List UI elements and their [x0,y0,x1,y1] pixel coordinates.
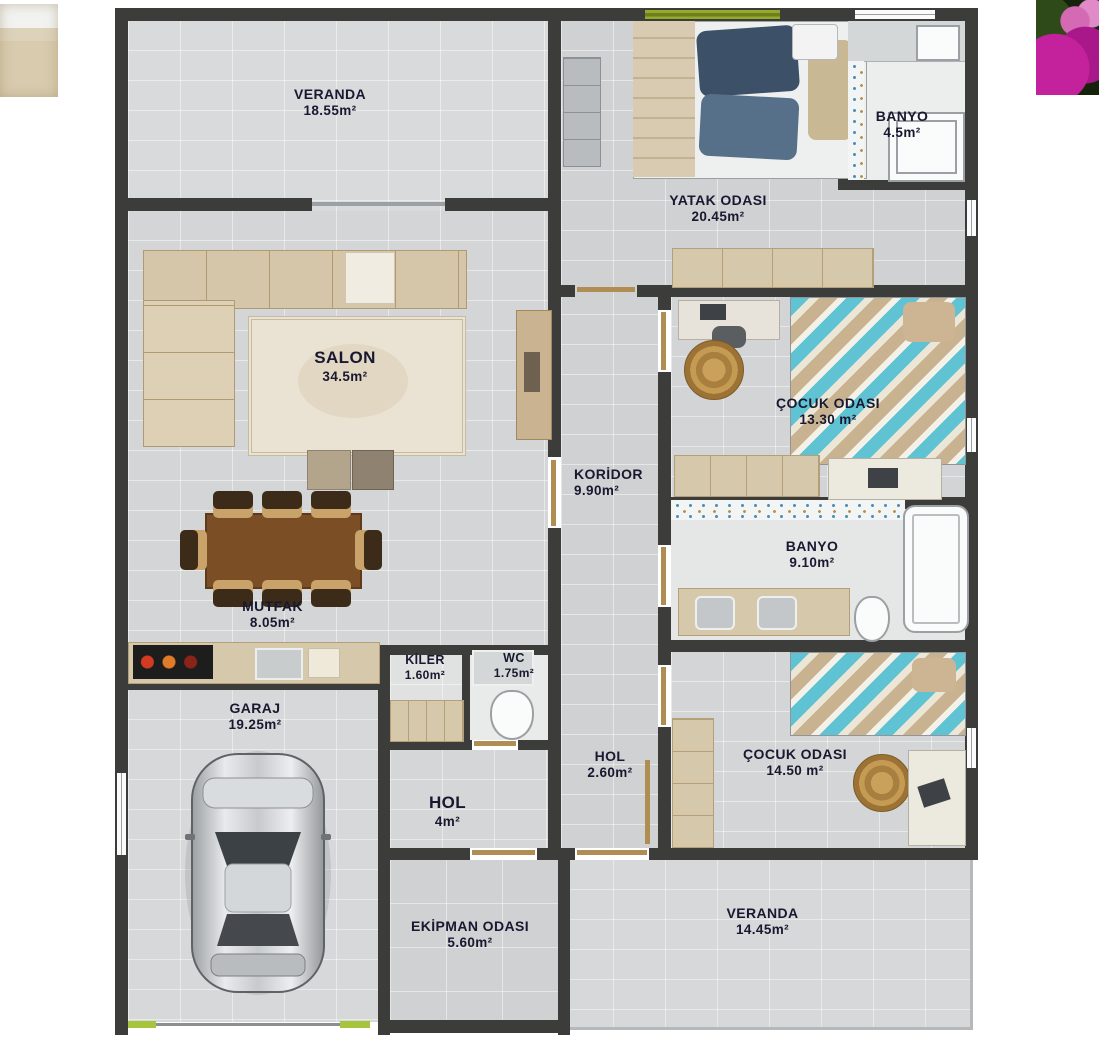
room-area: 5.60m² [385,935,555,951]
wardrobe [563,57,601,167]
dining-chair [311,491,351,518]
toilet [854,596,890,642]
wall-b3 [658,607,671,665]
cocuk1-pillow [903,302,955,342]
sofa-chaise [143,300,235,447]
right-window-1 [967,200,976,236]
garage-door-line [150,1023,362,1026]
stove [133,645,213,679]
wall-veranda-salon-2 [445,198,561,211]
right-window-3 [967,728,976,768]
kitchen-sink [255,648,303,680]
wall-top [115,8,978,21]
cocuk1-laptop2 [868,468,898,488]
room-label-banyo-1: BANYO 4.5m² [852,108,952,142]
coffee-table [307,450,351,490]
veranda-bottom-floor [561,860,972,1029]
room-name: BANYO [752,538,872,555]
garage-lime-accent-right [340,1021,370,1028]
room-label-cocuk-odasi-2: ÇOCUK ODASI 14.50 m² [700,746,890,780]
room-area: 9.10m² [752,555,872,571]
bathtub [903,505,969,633]
room-name: KORİDOR [574,466,674,483]
bath1-sink [916,25,960,61]
room-area: 2.60m² [565,765,655,781]
wall-bottom-2 [537,848,575,860]
banyo2-mosaic-strip [671,500,905,520]
right-window-2 [967,418,976,452]
master-bed-pillow-2 [698,93,799,160]
room-area: 19.25m² [195,717,315,733]
cocuk1-dresser [674,455,820,497]
wall-left [115,8,128,1035]
room-name: ÇOCUK ODASI [700,746,890,763]
master-bed-pillow-1 [696,25,800,98]
room-name: VERANDA [680,905,845,922]
room-area: 1.60m² [388,668,462,683]
room-label-veranda-bottom: VERANDA 14.45m² [680,905,845,939]
room-label-cocuk-odasi-1: ÇOCUK ODASI 13.30 m² [728,395,928,429]
room-name: SALON [270,348,420,369]
cocuk1-laptop [700,304,726,320]
wall-c [378,645,390,1035]
wall-b4 [658,727,671,860]
room-area: 4m² [400,814,495,830]
car-top-view [183,748,333,998]
room-label-salon: SALON 34.5m² [270,348,420,385]
room-name: EKİPMAN ODASI [385,918,555,935]
bedside-table [792,24,838,60]
wall-bottom-3 [649,848,978,860]
console-decor [524,352,540,392]
cocuk1-door [661,312,666,370]
room-label-veranda-top: VERANDA 18.55m² [240,86,420,120]
bathroom1-window [855,10,935,19]
room-area: 13.30 m² [728,412,928,428]
wc-door [474,741,516,746]
room-area: 20.45m² [618,209,818,225]
wall-a2 [548,528,561,860]
room-area: 4.5m² [852,125,952,141]
wall-ekipman-bottom [378,1020,570,1033]
room-name: KİLER [388,653,462,668]
veranda-bottom-right-edge [970,860,973,1030]
bedroom-window-green [645,10,780,19]
sliding-door-line [312,202,445,206]
dining-chair [355,530,382,570]
sofa-throw [345,252,395,304]
flower-photo-fragment [1036,0,1099,95]
room-area: 14.45m² [680,922,845,938]
dining-chair [180,530,207,570]
floorplan-canvas: VERANDA 18.55m² YATAK ODASI 20.45m² BANY… [0,0,1099,1063]
wc-toilet [490,690,534,740]
ekipman-door [472,850,535,855]
banyo2-sink-1 [695,596,735,630]
coffee-table-2 [352,450,394,490]
room-name: HOL [400,793,495,814]
veranda-door [577,850,647,855]
cocuk2-wardrobe [672,718,714,848]
master-bed-blanket [633,21,695,177]
dining-table [205,513,362,589]
kitchen-item [308,648,340,678]
garage-window [117,773,126,855]
room-label-kiler: KİLER 1.60m² [388,653,462,683]
room-area: 9.90m² [574,483,674,499]
room-label-wc: WC 1.75m² [478,651,550,681]
wall-bottom-1 [378,848,470,860]
room-label-yatak-odasi: YATAK ODASI 20.45m² [618,192,818,226]
wall-b2 [658,372,671,545]
room-name: YATAK ODASI [618,192,818,209]
veranda-bottom-edge [570,1027,973,1030]
banyo2-sink-2 [757,596,797,630]
room-label-banyo-2: BANYO 9.10m² [752,538,872,572]
wall-b1 [658,297,671,310]
wall-d [558,860,570,1035]
room-area: 18.55m² [240,103,420,119]
bedroom-dresser [672,248,874,288]
room-name: BANYO [852,108,952,125]
cocuk2-door [661,667,666,725]
garage-lime-accent-left [128,1021,156,1028]
room-name: ÇOCUK ODASI [728,395,928,412]
wall-veranda-salon-1 [128,198,312,211]
room-name: MUTFAK [210,598,335,615]
wall-banyo-cocuk2 [671,640,978,652]
room-label-hol-2: HOL 2.60m² [565,748,655,782]
cocuk2-pillow [912,658,956,692]
room-area: 14.50 m² [700,763,890,779]
stone-photo-fragment [0,4,58,97]
wall-bedroom-bottom-1 [561,285,575,297]
room-area: 8.05m² [210,615,335,631]
room-name: VERANDA [240,86,420,103]
banyo2-door [661,547,666,605]
dining-chair [262,491,302,518]
room-label-mutfak: MUTFAK 8.05m² [210,598,335,632]
room-area: 1.75m² [478,666,550,681]
salon-koridor-door [551,460,556,526]
dining-chair [213,491,253,518]
room-label-ekipman-odasi: EKİPMAN ODASI 5.60m² [385,918,555,952]
cocuk1-rattan-rug [684,340,744,400]
bedroom-door [577,287,635,292]
room-name: HOL [565,748,655,765]
room-label-garaj: GARAJ 19.25m² [195,700,315,734]
room-label-hol-4: HOL 4m² [400,793,495,830]
room-name: GARAJ [195,700,315,717]
kiler-shelf [390,700,464,742]
room-area: 34.5m² [270,369,420,385]
room-label-koridor: KORİDOR 9.90m² [574,466,674,500]
room-name: WC [478,651,550,666]
wall-kilerwc-bottom-2 [518,740,561,750]
